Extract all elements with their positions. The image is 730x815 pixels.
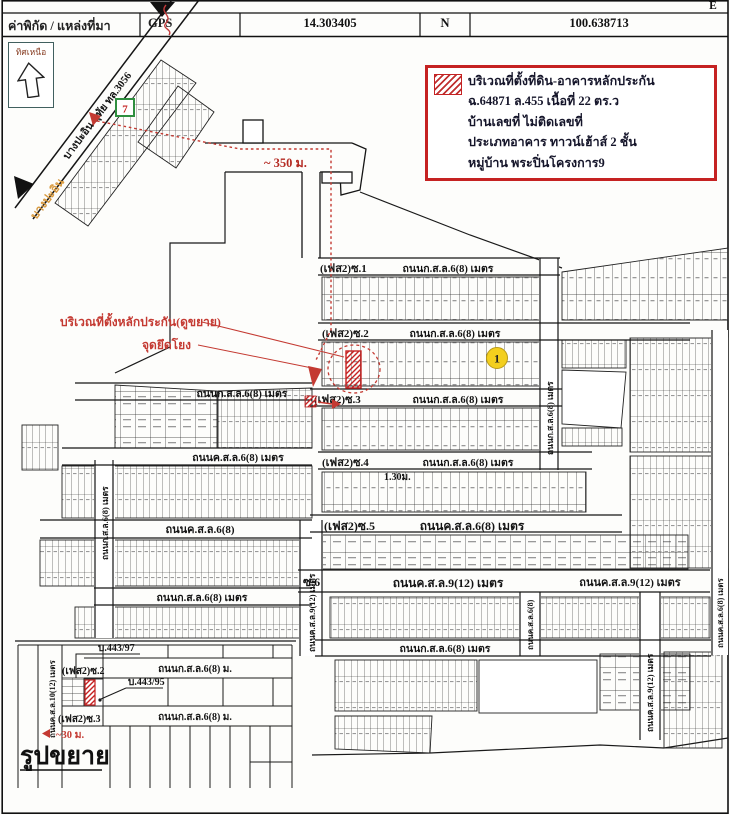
marker-1: 1	[487, 348, 508, 369]
road-soi1-label: ถนนก.ส.ล.6(8) เมตร	[403, 264, 494, 275]
inset-vroad-label: ถนนค.ส.ล.10(12) เมตร	[48, 660, 57, 738]
vroad-right-edge-label: ถนนค.ส.ล.6(8) เมตร	[716, 578, 725, 648]
red-stamp-mark	[305, 396, 316, 407]
inset-road-soi3-label: ถนนก.ส.ล.6(8) ม.	[158, 712, 232, 723]
inset-house-97-label: บ.443/97	[98, 643, 135, 654]
info-line-1: บริเวณที่ตั้งที่ดิน-อาคารหลักประกัน	[468, 71, 710, 91]
inset-soi3-label: (เฟส2)ซ.3	[58, 713, 101, 725]
vroad-left-label: ถนนก.ส.ล.6(8) เมตร	[100, 486, 110, 560]
inset-subject-parcel-hatch	[85, 680, 95, 705]
soi1-label: (เฟส2)ซ.1	[320, 262, 367, 275]
north-arrow-icon	[17, 62, 45, 98]
seven-eleven-label: 7	[122, 104, 128, 116]
road-soi3-label: ถนนก.ส.ล.6(8) เมตร	[413, 395, 504, 406]
collateral-info-box: บริเวณที่ตั้งที่ดิน-อาคารหลักประกัน ฉ.64…	[425, 65, 717, 181]
road-left-1-label: ถนนก.ส.ล.6(8) เมตร	[197, 389, 288, 400]
road-left-3-label: ถนนค.ส.ล.6(8)	[165, 524, 234, 536]
north-label: ทิศเหนือ	[9, 45, 53, 59]
road-bottom-label: ถนนก.ส.ล.6(8) เมตร	[400, 644, 491, 655]
inset-map: บ.443/97 (เฟส2)ซ.2 ถนนก.ส.ล.6(8) ม. บ.44…	[18, 643, 292, 788]
entrance-road	[205, 120, 366, 258]
inset-title: รูปขยาย	[20, 743, 110, 772]
route-end-arrow-icon	[308, 366, 322, 387]
site-note-label: บริเวณที่ตั้งหลักประกัน(ดูขยาย)	[60, 312, 221, 330]
hatch-legend-swatch	[434, 74, 462, 95]
info-line-3: บ้านเลขที่ ไม่ติดเลขที่	[468, 112, 710, 132]
tie-point-label: จุดยึดโยง	[142, 337, 191, 353]
vroad-mid-label: ถนนก.ส.ล.6(8) เมตร	[545, 381, 555, 455]
road-soi6-label: ถนนค.ส.ล.9(12) เมตร	[393, 576, 504, 590]
inset-red-arrow-icon	[42, 729, 50, 738]
width-130-label: 1.30ม.	[384, 472, 411, 483]
road-left-4-label: ถนนก.ส.ล.6(8) เมตร	[157, 593, 248, 604]
vroad-68-label: ถนนค.ส.ล.6(8)	[526, 599, 535, 650]
vroad-912-right-label: ถนนค.ส.ล.9(12) เมตร	[645, 653, 655, 732]
info-line-4: ประเภทอาคาร ทาวน์เฮ้าส์ 2 ชั้น	[468, 132, 710, 152]
info-line-5: หมู่บ้าน พระปิ่นโครงการ9	[468, 153, 710, 173]
info-line-2: ฉ.64871 ล.455 เนื้อที่ 22 ตร.ว	[468, 91, 710, 111]
inset-soi2-label: (เฟส2)ซ.2	[62, 665, 105, 677]
vroad-912-label: ถนนค.ส.ล.9(12) เมตร	[307, 573, 317, 652]
subject-parcel-hatch	[346, 351, 361, 388]
seven-eleven-marker: 7	[116, 99, 134, 116]
road-arrow-up-icon	[150, 2, 175, 17]
inset-road-soi2-label: ถนนก.ส.ล.6(8) ม.	[158, 664, 232, 675]
road-soi2-label: ถนนก.ส.ล.6(8) เมตร	[410, 329, 501, 340]
cadastral-map-page: (เฟส2)ซ.1 ถนนก.ส.ล.6(8) เมตร (เฟส2)ซ.2 ถ…	[0, 0, 730, 815]
inset-house-95-label: บ.443/95	[128, 677, 165, 688]
road-left-2-label: ถนนค.ส.ล.6(8) เมตร	[192, 453, 284, 464]
marker-1-label: 1	[494, 352, 500, 366]
soi5-label: (เฟส2)ซ.5	[324, 519, 375, 533]
north-compass: ทิศเหนือ	[8, 42, 54, 108]
road-soi5-label: ถนนค.ส.ล.6(8) เมตร	[420, 519, 525, 533]
road-soi4-label: ถนนก.ส.ล.6(8) เมตร	[423, 458, 514, 469]
inset-dist-30-label: ~30 ม.	[56, 730, 85, 741]
distance-350-label: ~ 350 ม.	[264, 156, 307, 170]
road-soi6-label-2: ถนนค.ส.ล.9(12) เมตร	[579, 577, 680, 589]
soi4-label: (เฟส2)ซ.4	[322, 456, 369, 469]
